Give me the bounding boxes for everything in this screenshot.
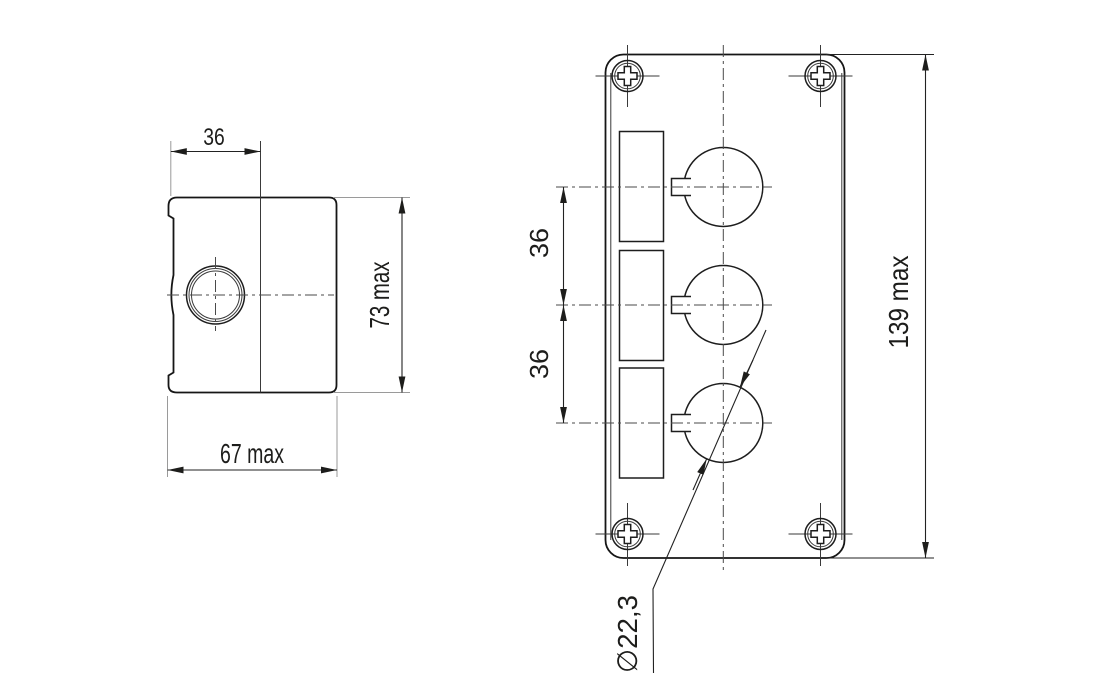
dimension-top-width: 36 <box>171 124 261 196</box>
dimension-label-36-spacing-bottom: 36 <box>524 349 554 379</box>
dimension-drawing: 36 73 max 67 max <box>0 0 1100 700</box>
dimension-side-height: 73 max <box>333 198 410 393</box>
dimension-label-67-max: 67 max <box>220 438 284 469</box>
dimension-bottom-width: 67 max <box>168 396 338 477</box>
dimension-label-36-spacing-top: 36 <box>524 228 554 258</box>
dimension-label-36-top: 36 <box>203 124 225 151</box>
side-view: 36 73 max 67 max <box>167 124 410 477</box>
dimension-label-hole-diameter: ∅22,3 <box>612 595 643 673</box>
dimension-label-139-max: 139 max <box>883 256 914 349</box>
front-view-outline <box>606 55 845 559</box>
front-view: 36 36 139 max ∅22,3 <box>524 45 934 673</box>
drawing-canvas: 36 73 max 67 max <box>0 0 1100 700</box>
dimension-label-73-max: 73 max <box>364 262 395 329</box>
